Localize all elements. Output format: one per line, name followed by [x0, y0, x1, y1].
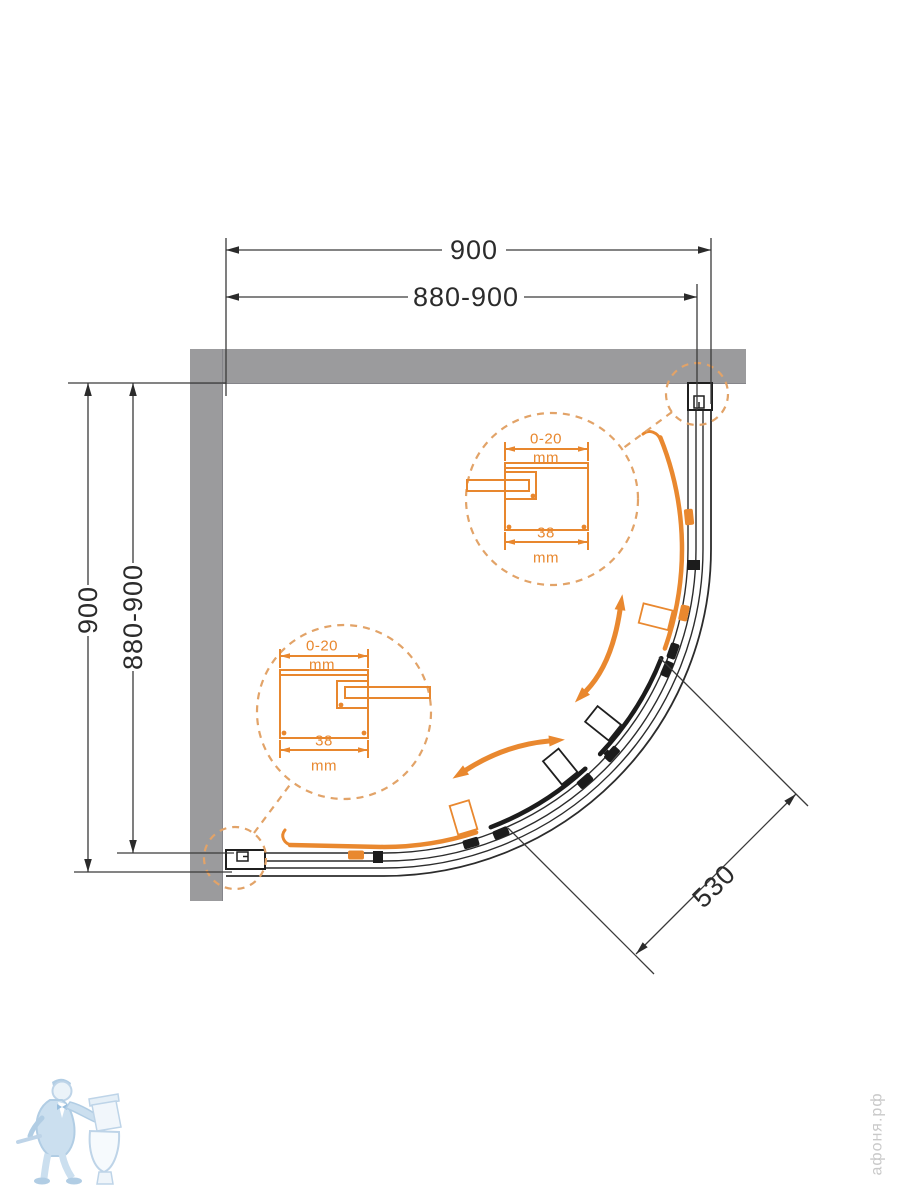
arrow-head-icon: [549, 736, 565, 747]
detail-gap-unit: mm: [309, 657, 335, 674]
dimension-labels: 900 880-900 900 880-900 530: [73, 235, 742, 914]
arrow-head-icon: [129, 383, 137, 396]
track-inner-line: [265, 410, 688, 853]
detail-gap-unit: mm: [533, 450, 559, 467]
screw-dot: [362, 731, 367, 736]
detail-view-bottom: 0-20 mm 38 mm: [280, 638, 430, 775]
dim-width-overall: 900: [450, 235, 498, 265]
plumber-shoe: [66, 1178, 82, 1185]
wall-profiles: [226, 383, 712, 869]
detail-view-top: 0-20 mm 38 mm: [467, 431, 588, 567]
arrow-head-icon: [698, 246, 711, 254]
roller-dark-6: [462, 836, 480, 849]
screw-dot: [282, 731, 287, 736]
arrow-head-icon: [280, 747, 290, 753]
slide-arrows: [453, 594, 626, 778]
door-handles: [450, 603, 675, 836]
screw-dot: [582, 525, 587, 530]
slide-arrow-lower: [466, 741, 549, 770]
plumber-leg: [62, 1154, 72, 1178]
roller-orange-3: [348, 851, 364, 860]
outer-glass-line: [226, 383, 703, 868]
drawing-svg: 0-20 mm 38 mm 0-20 mm 38: [0, 0, 900, 1200]
arrow-head-icon: [505, 539, 515, 545]
door-end-hook-bottom: [283, 830, 292, 845]
glass-tongue: [345, 687, 430, 698]
watermark-site-text: афоня.рф: [869, 1093, 886, 1176]
callout-circle-big-bottom: [257, 625, 431, 799]
detail-gap-value: 0-20: [530, 431, 562, 448]
detail-width-unit: mm: [311, 758, 337, 775]
arrow-head-icon: [358, 747, 368, 753]
toilet-bowl: [90, 1131, 119, 1172]
profile-body: [505, 463, 588, 530]
dim-door-opening: 530: [686, 858, 741, 913]
dim-depth-overall: 900: [73, 586, 103, 634]
watermark-plumber: [18, 1079, 121, 1185]
wall-profile-top-right: [688, 383, 712, 410]
screw-dot: [339, 703, 344, 708]
arrow-head-icon: [505, 446, 515, 452]
slide-arrow-upper: [586, 610, 620, 691]
arrow-head-icon: [84, 383, 92, 396]
toilet-base: [97, 1172, 113, 1184]
plumber-shoe: [34, 1178, 50, 1185]
ext-line-diagonal: [508, 828, 654, 974]
dim-depth-adjust: 880-900: [118, 564, 148, 670]
shower-enclosure-plan-drawing: 0-20 mm 38 mm 0-20 mm 38: [0, 0, 900, 1200]
detail-width-unit: mm: [533, 550, 559, 567]
sliding-doors: [283, 432, 695, 860]
plumber-leg: [44, 1154, 48, 1178]
arrow-head-icon: [280, 653, 290, 659]
roller-orange-1: [684, 509, 695, 526]
arrow-head-icon: [129, 840, 137, 853]
arrow-head-icon: [684, 293, 697, 301]
top-wall: [190, 349, 746, 383]
detail-gap-value: 0-20: [306, 638, 338, 655]
door-handle-orange-top: [639, 603, 673, 630]
arrow-head-icon: [578, 446, 588, 452]
sliding-door-orange-bottom: [290, 832, 476, 847]
glass-tongue: [467, 480, 529, 491]
door-rollers: [348, 509, 694, 860]
track-outer-line: [265, 410, 696, 861]
callout-leader-bottom: [254, 782, 292, 833]
door-stop-bottom: [373, 851, 383, 863]
arrow-head-icon: [226, 293, 239, 301]
arrow-head-icon: [84, 859, 92, 872]
door-end-hook-top: [643, 432, 661, 441]
arrow-head-icon: [358, 653, 368, 659]
ext-line-diagonal: [659, 657, 808, 806]
left-wall: [190, 349, 223, 901]
dim-width-adjust: 880-900: [413, 282, 519, 312]
screw-dot: [507, 525, 512, 530]
door-stop-top: [687, 560, 700, 570]
door-handle-orange-bottom: [450, 800, 478, 834]
arrow-head-icon: [578, 539, 588, 545]
arrow-head-icon: [226, 246, 239, 254]
detail-width-value: 38: [315, 733, 333, 750]
detail-width-value: 38: [537, 525, 555, 542]
screw-dot: [531, 494, 536, 499]
arrow-head-icon: [615, 594, 626, 611]
toilet-tank: [92, 1101, 121, 1131]
plumber-head: [53, 1082, 72, 1101]
